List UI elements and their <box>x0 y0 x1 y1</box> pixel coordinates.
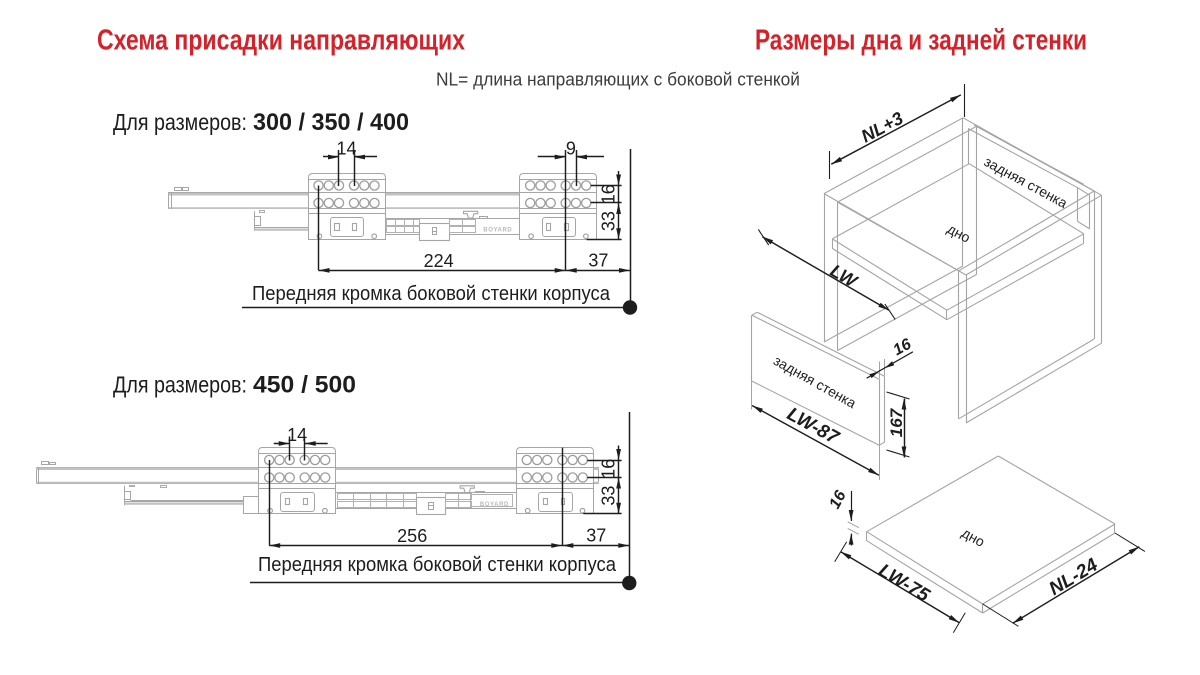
svg-text:Передняя кромка боковой стенки: Передняя кромка боковой стенки корпуса <box>258 554 617 576</box>
svg-text:256: 256 <box>397 526 427 546</box>
svg-text:33: 33 <box>599 486 619 506</box>
svg-text:Размеры дна и задней стенки: Размеры дна и задней стенки <box>755 25 1087 57</box>
svg-text:16: 16 <box>599 459 619 479</box>
svg-text:167: 167 <box>887 407 906 437</box>
svg-text:Для размеров:: Для размеров: <box>113 109 247 135</box>
svg-text:Для размеров:: Для размеров: <box>113 372 247 398</box>
svg-text:16: 16 <box>599 184 619 204</box>
svg-text:Передняя кромка боковой стенки: Передняя кромка боковой стенки корпуса <box>252 283 611 305</box>
svg-text:450 / 500: 450 / 500 <box>253 372 356 399</box>
svg-text:37: 37 <box>588 250 608 270</box>
svg-text:14: 14 <box>287 425 307 445</box>
svg-text:37: 37 <box>586 526 606 546</box>
svg-text:9: 9 <box>566 139 576 159</box>
svg-text:33: 33 <box>599 211 619 231</box>
svg-text:Схема присадки направляющих: Схема присадки направляющих <box>97 25 465 57</box>
svg-text:14: 14 <box>336 139 356 159</box>
svg-text:224: 224 <box>424 251 454 271</box>
svg-text:NL= длина направляющих с боков: NL= длина направляющих с боковой стенкой <box>436 70 800 90</box>
svg-text:BOYARD: BOYARD <box>483 228 512 234</box>
svg-text:BOYARD: BOYARD <box>480 502 509 508</box>
svg-text:300 / 350 / 400: 300 / 350 / 400 <box>253 109 409 136</box>
